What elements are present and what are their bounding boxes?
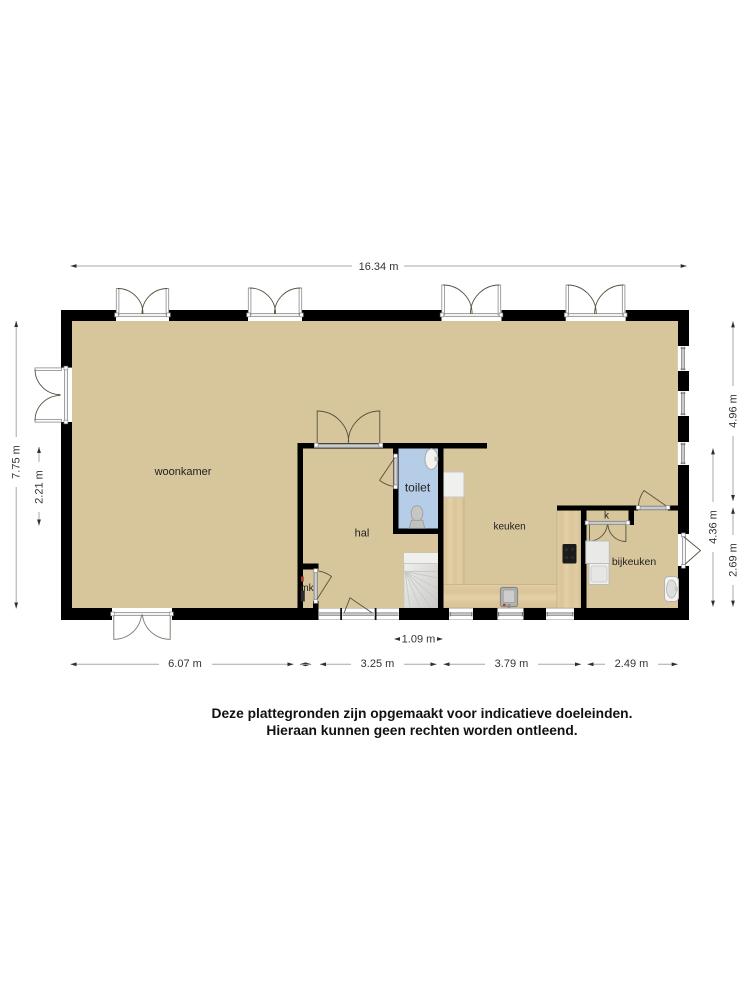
svg-text:2.21 m: 2.21 m [33, 470, 45, 504]
svg-text:1.09 m: 1.09 m [402, 634, 436, 646]
svg-text:3.79 m: 3.79 m [495, 658, 529, 670]
svg-text:4.36 m: 4.36 m [707, 510, 719, 544]
svg-text:toilet: toilet [405, 480, 431, 494]
svg-text:2.49 m: 2.49 m [615, 658, 649, 670]
svg-text:Hieraan kunnen geen rechten wo: Hieraan kunnen geen rechten worden ontle… [266, 723, 577, 738]
svg-text:hal: hal [355, 528, 370, 540]
svg-text:keuken: keuken [493, 522, 525, 533]
svg-text:3.25 m: 3.25 m [361, 658, 395, 670]
svg-text:bijkeuken: bijkeuken [612, 556, 657, 568]
svg-text:7.75 m: 7.75 m [11, 445, 23, 479]
svg-text:4.96 m: 4.96 m [727, 394, 739, 428]
svg-text:6.07 m: 6.07 m [168, 658, 202, 670]
svg-text:Deze plattegronden zijn opgema: Deze plattegronden zijn opgemaakt voor i… [212, 706, 633, 721]
svg-text:16.34 m: 16.34 m [359, 261, 399, 273]
svg-text:woonkamer: woonkamer [154, 466, 212, 478]
svg-text:2.69 m: 2.69 m [727, 543, 739, 577]
svg-text:mk: mk [300, 583, 314, 594]
